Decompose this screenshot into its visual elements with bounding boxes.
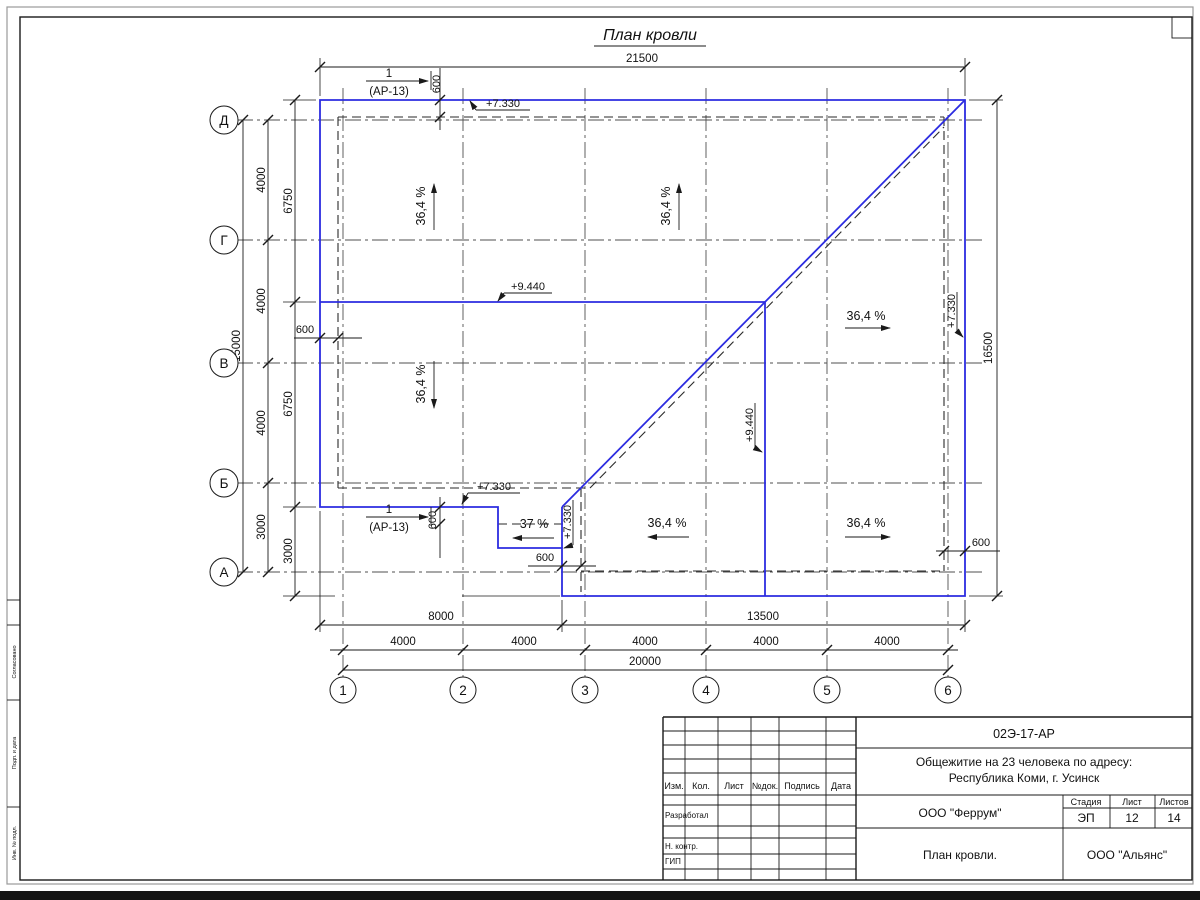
section-mark-bottom: 1 (АР-13) [366,504,431,534]
axis-col-2: 2 [459,683,467,698]
dim-left-inner-3: 3000 [283,538,295,564]
dim-overhang-top: 600 [431,75,443,93]
tb-col-izm: Изм. [664,781,683,791]
drawing-title: План кровли [594,27,706,46]
dim-left-axis-4: 3000 [256,514,268,540]
dim-overhang-step: 600 [536,552,554,564]
tb-sheet-title: План кровли. [923,848,997,862]
tb-sheet-value: 12 [1125,811,1139,825]
axis-row-a: А [219,565,228,580]
tb-project-line2: Республика Коми, г. Усинск [949,771,1100,785]
section-number: 1 [386,68,392,80]
elev-mark-step: +7.330 [562,505,574,539]
axis-grid-lines [237,88,985,677]
dim-bay-1: 4000 [390,636,416,648]
slope-label-w: 36,4 % [414,365,428,404]
dim-left-inner-1: 6750 [283,188,295,214]
axis-row-g: Г [220,233,228,248]
elevation-marks: +7.330 +9.440 +7.330 +7.330 +7.330 +9.44… [462,98,963,548]
tb-col-podpis: Подпись [784,781,820,791]
side-stamp-label-1: Согласовано [12,645,18,678]
section-mark-top: 1 (АР-13) [366,68,431,98]
axis-col-4: 4 [702,683,710,698]
tb-role-developer: Разработал [665,811,709,820]
axis-row-v: В [219,356,228,371]
slope-label-nw: 36,4 % [414,187,428,226]
dim-overhang-right: 600 [972,537,990,549]
dim-left-axis-2: 4000 [256,288,268,314]
axis-col-1: 1 [339,683,347,698]
tb-stage-value: ЭП [1077,811,1094,825]
dim-bottom-13500: 13500 [747,611,779,623]
sheet-bottom-edge [0,891,1200,900]
slope-label-s1: 36,4 % [648,516,687,530]
axis-col-3: 3 [581,683,589,698]
tb-doc-number: 02Э-17-АР [993,727,1055,741]
tb-col-data: Дата [831,781,851,791]
tb-sheets-value: 14 [1167,811,1181,825]
elev-mark-top: +7.330 [486,98,520,110]
elev-mark-bottom-left: +7.330 [477,481,511,493]
section-number: 1 [386,504,392,516]
tb-role-ncontrol: Н. контр. [665,842,698,851]
axis-row-d: Д [219,113,228,128]
elev-mark-right: +7.330 [946,294,958,328]
tb-project-line1: Общежитие на 23 человека по адресу: [916,755,1132,769]
valley-line [562,100,965,507]
dim-bottom-8000: 8000 [428,611,454,623]
dim-bay-4: 4000 [753,636,779,648]
extension-lines [283,58,1003,632]
overhang-dims: 600 600 600 600 [294,68,596,571]
side-stamp: Согласовано Подп. и дата Инв. № подл. [7,600,20,860]
tb-stage-label: Стадия [1071,797,1102,807]
corner-cell [1172,17,1192,38]
dim-bay-3: 4000 [632,636,658,648]
drawing-sheet: Согласовано Подп. и дата Инв. № подл. Пл… [0,0,1200,900]
column-axis-bubbles: 1 2 3 4 5 6 [330,677,961,703]
tb-sheets-label: Листов [1159,797,1188,807]
axis-row-b: Б [220,476,229,491]
dim-bottom-total: 20000 [629,656,661,668]
section-sheet-ref: (АР-13) [369,522,409,534]
roof-plan-drawing: Согласовано Подп. и дата Инв. № подл. Пл… [0,0,1200,900]
tb-designer-org: ООО "Феррум" [919,806,1002,820]
tb-col-ndok: №док. [752,781,778,791]
dim-chains-left: 15000 4000 4000 4000 3000 6750 6750 3000 [231,95,300,601]
axis-col-5: 5 [823,683,831,698]
axis-col-6: 6 [944,683,952,698]
wall-under-valley [590,127,944,488]
title-block: Изм. Кол. Лист №док. Подпись Дата Разраб… [663,717,1192,880]
dim-bay-5: 4000 [874,636,900,648]
dim-left-axis-3: 4000 [256,410,268,436]
dim-chain-top: 21500 [315,53,970,72]
dim-right-total: 16500 [983,332,995,364]
dim-left-axis-1: 4000 [256,167,268,193]
elev-mark-ridge: +9.440 [511,281,545,293]
tb-client-org: ООО "Альянс" [1087,848,1167,862]
dim-chain-right: 16500 600 [936,95,1002,601]
slope-label-e: 36,4 % [847,309,886,323]
tb-col-kol: Кол. [692,781,710,791]
side-stamp-label-3: Инв. № подл. [12,825,18,860]
dim-chains-bottom: 8000 13500 4000 4000 4000 4000 4000 2000… [315,611,970,675]
tb-col-list: Лист [724,781,744,791]
dim-left-inner-2: 6750 [283,391,295,417]
dim-overhang-porch: 600 [427,511,439,529]
side-stamp-label-2: Подп. и дата [12,736,18,769]
dim-bay-2: 4000 [511,636,537,648]
slope-label-porch: 37 % [520,517,549,531]
elev-mark-ridge-vertical: +9.440 [744,408,756,442]
slope-label-s2: 36,4 % [847,516,886,530]
section-sheet-ref: (АР-13) [369,86,409,98]
tb-sheet-label: Лист [1122,797,1142,807]
dim-top-total: 21500 [626,53,658,65]
page-title: План кровли [603,27,697,44]
tb-role-gip: ГИП [665,857,681,866]
slope-label-ne: 36,4 % [659,187,673,226]
dim-overhang-left: 600 [296,324,314,336]
